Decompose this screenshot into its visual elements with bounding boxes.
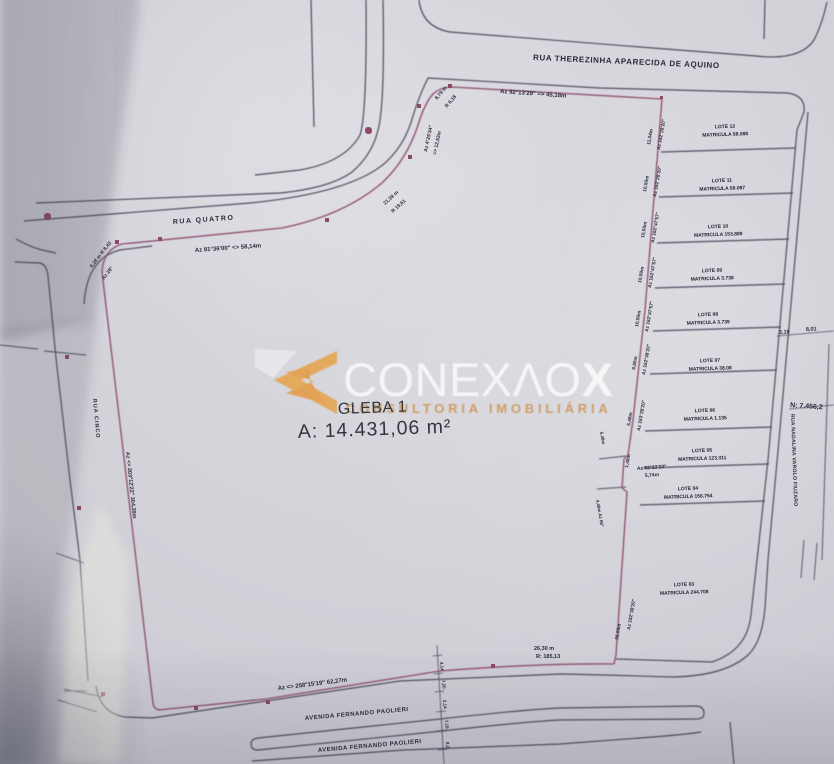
svg-text:LOTE 12: LOTE 12 bbox=[715, 124, 736, 131]
svg-text:LOTE 03: LOTE 03 bbox=[674, 582, 695, 589]
svg-text:LOTE 07: LOTE 07 bbox=[700, 358, 721, 365]
svg-text:LOTE 10: LOTE 10 bbox=[708, 224, 729, 231]
svg-text:8,01: 8,01 bbox=[806, 326, 817, 333]
svg-text:LOTE 09: LOTE 09 bbox=[702, 268, 723, 275]
svg-text:LOTE 04: LOTE 04 bbox=[678, 486, 699, 493]
svg-text:LOTE 08: LOTE 08 bbox=[698, 312, 719, 319]
svg-text:CONEXΛOX: CONEXΛOX bbox=[343, 353, 613, 406]
svg-text:LOTE 06: LOTE 06 bbox=[695, 408, 716, 415]
svg-text:5,74m: 5,74m bbox=[645, 472, 660, 479]
svg-text:LOTE 05: LOTE 05 bbox=[692, 448, 713, 455]
svg-text:LOTE 11: LOTE 11 bbox=[712, 178, 732, 185]
svg-text:3,19: 3,19 bbox=[779, 329, 790, 336]
svg-text:GLEBA 1: GLEBA 1 bbox=[338, 399, 408, 418]
